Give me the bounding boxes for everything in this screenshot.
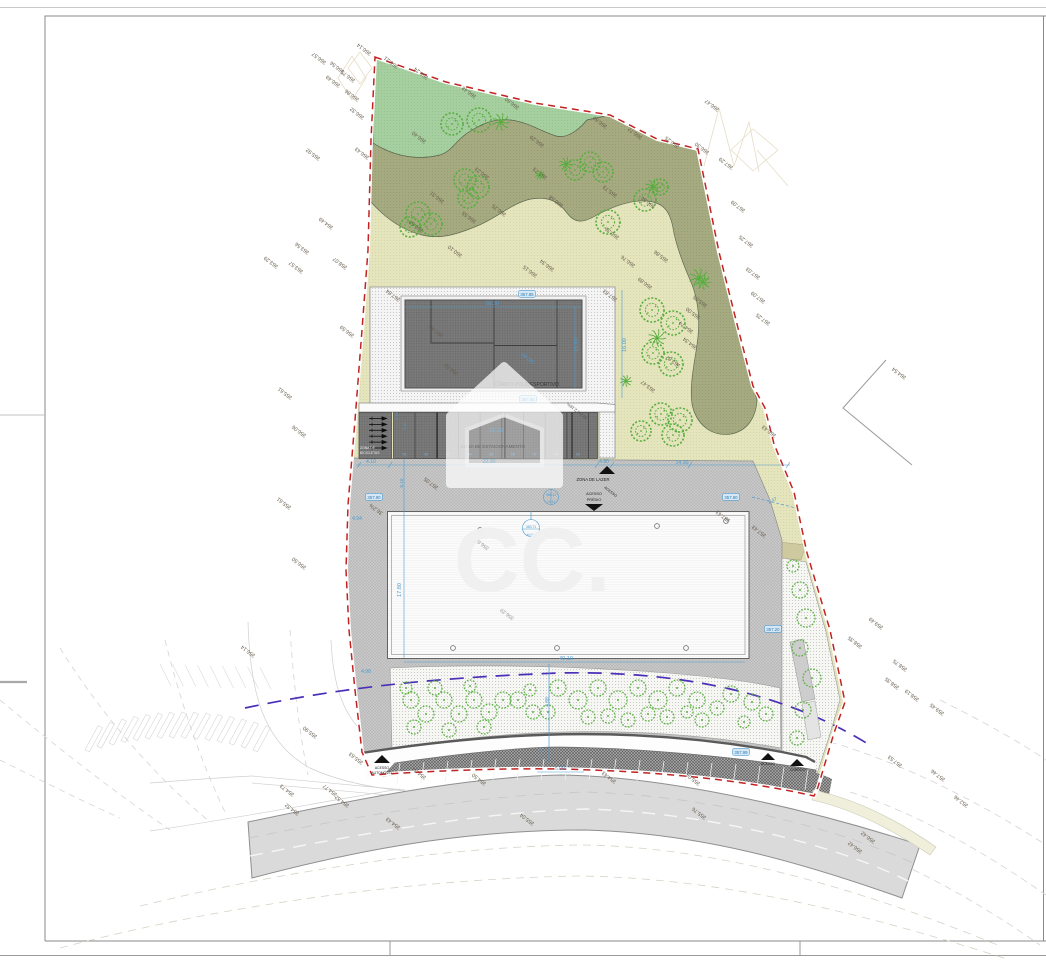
svg-text:357.20: 357.20	[766, 627, 780, 632]
svg-text:CC.: CC.	[454, 510, 611, 611]
svg-text:09: 09	[576, 452, 580, 456]
svg-text:4.10: 4.10	[366, 459, 376, 465]
svg-text:368.11: 368.11	[546, 493, 556, 497]
svg-text:BICICLETAS: BICICLETAS	[360, 451, 380, 455]
svg-text:14.90: 14.90	[676, 460, 689, 466]
svg-text:CORREIO +: CORREIO +	[790, 768, 808, 772]
svg-text:17.80: 17.80	[397, 583, 403, 597]
svg-text:ACESSO: ACESSO	[761, 762, 775, 766]
svg-text:1.50: 1.50	[538, 747, 543, 756]
svg-text:16.00: 16.00	[622, 338, 628, 352]
svg-text:ZONA DE LAZER: ZONA DE LAZER	[576, 477, 609, 482]
svg-text:6.10: 6.10	[399, 478, 404, 487]
svg-text:02: 02	[424, 452, 428, 456]
svg-text:5.00: 5.00	[555, 766, 565, 772]
svg-text:40.10: 40.10	[559, 656, 573, 662]
svg-text:357.90: 357.90	[367, 495, 381, 500]
svg-text:+0.11: +0.11	[547, 500, 555, 504]
svg-text:357.90: 357.90	[724, 495, 738, 500]
svg-text:ZONA DE: ZONA DE	[360, 446, 376, 450]
svg-text:PRÉDIO: PRÉDIO	[587, 497, 602, 502]
svg-text:01: 01	[403, 452, 407, 456]
svg-text:367.85: 367.85	[520, 292, 534, 297]
svg-text:28.30: 28.30	[485, 301, 499, 307]
svg-text:5.00: 5.00	[402, 421, 407, 430]
svg-text:15.00: 15.00	[574, 338, 580, 352]
svg-text:ACESSO: ACESSO	[375, 766, 389, 770]
svg-text:4.94: 4.94	[352, 516, 362, 522]
svg-text:357.99: 357.99	[734, 750, 748, 755]
svg-text:ACESSO: ACESSO	[586, 492, 602, 496]
svg-text:2.50: 2.50	[394, 411, 399, 420]
svg-text:4.98: 4.98	[361, 669, 371, 675]
svg-text:AUTOMÓVEL: AUTOMÓVEL	[371, 770, 392, 775]
svg-text:4.90: 4.90	[599, 459, 609, 465]
svg-text:4.88: 4.88	[545, 697, 551, 707]
